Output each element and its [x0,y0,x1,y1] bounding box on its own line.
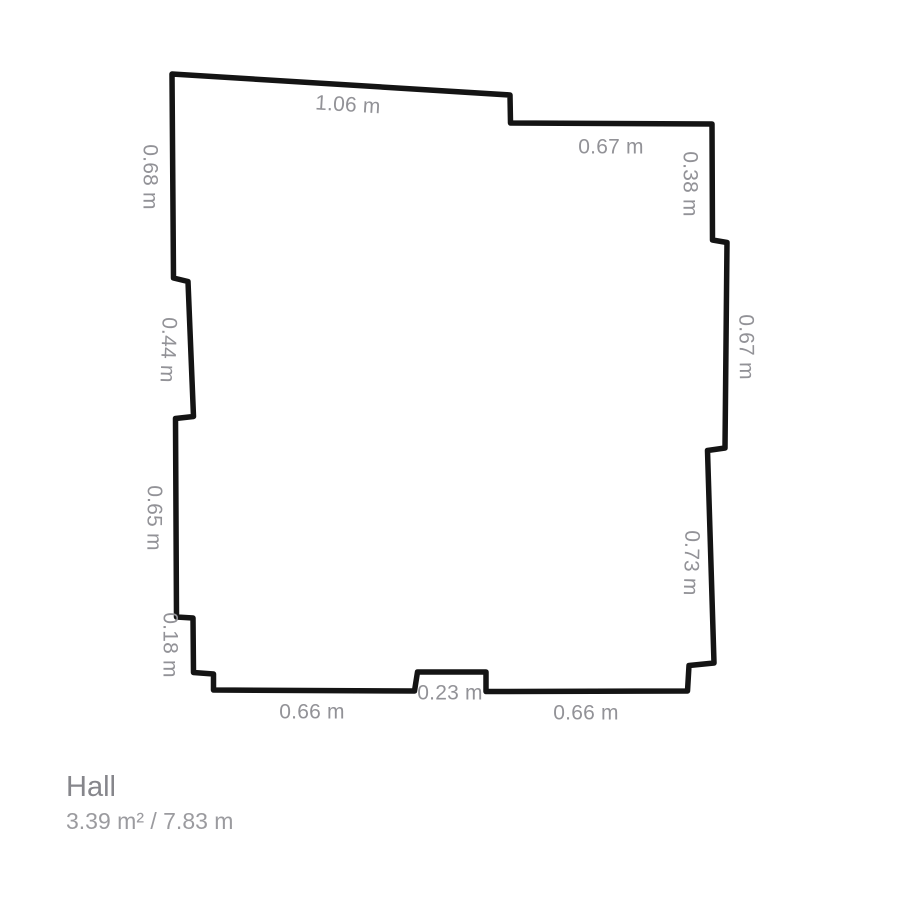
dimension-label: 0.66 m [279,700,344,723]
dimension-label: 0.67 m [734,314,758,380]
dimension-label: 0.68 m [139,144,162,209]
dimension-label: 0.66 m [553,701,618,724]
room-summary: Hall 3.39 m² / 7.83 m [66,771,233,836]
dimension-label: 1.06 m [315,91,382,118]
dimension-label: 0.18 m [159,612,182,677]
dimension-label: 0.23 m [417,681,482,704]
room-area-perimeter: 3.39 m² / 7.83 m [66,806,233,836]
dimension-label: 0.67 m [578,135,643,158]
room-outline[interactable] [172,74,727,692]
dimension-label: 0.44 m [156,317,181,383]
dimension-label: 0.73 m [679,530,704,596]
room-name: Hall [66,771,233,804]
floorplan-canvas: 1.06 m0.67 m0.38 m0.67 m0.73 m0.66 m0.23… [0,0,900,900]
room-outline-svg: 1.06 m0.67 m0.38 m0.67 m0.73 m0.66 m0.23… [0,0,900,900]
dimension-label: 0.65 m [142,485,166,551]
dimension-label: 0.38 m [679,151,702,216]
